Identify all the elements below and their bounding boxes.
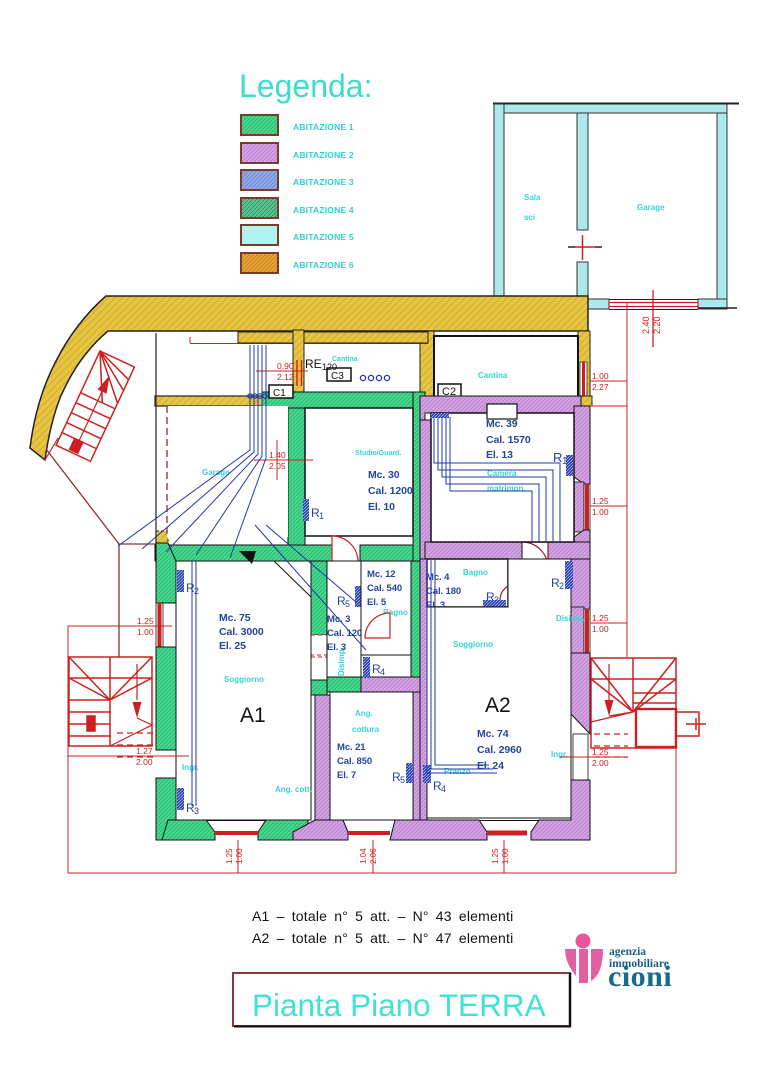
svg-text:agenzia: agenzia bbox=[609, 946, 646, 958]
svg-text:Garage: Garage bbox=[202, 468, 230, 477]
svg-text:4: 4 bbox=[380, 667, 385, 677]
svg-text:Disimp.: Disimp. bbox=[556, 614, 585, 623]
svg-text:A2: A2 bbox=[485, 694, 511, 717]
svg-text:ABITAZIONE 1: ABITAZIONE 1 bbox=[293, 122, 354, 132]
svg-text:2.12: 2.12 bbox=[277, 372, 294, 382]
svg-text:Studio/Guard.: Studio/Guard. bbox=[355, 450, 401, 457]
svg-text:1.00: 1.00 bbox=[592, 371, 609, 381]
svg-text:El. 25: El. 25 bbox=[219, 640, 246, 652]
svg-text:1: 1 bbox=[319, 511, 324, 521]
svg-text:1.00: 1.00 bbox=[501, 848, 510, 864]
svg-text:A1 – totale n° 5 att. –: A1 – totale n° 5 att. – N° 43 elementi bbox=[252, 908, 513, 924]
svg-text:5: 5 bbox=[345, 599, 350, 609]
svg-text:Cal. 540: Cal. 540 bbox=[367, 583, 402, 594]
svg-text:C1: C1 bbox=[273, 388, 286, 399]
svg-text:Cal. 3000: Cal. 3000 bbox=[219, 626, 264, 638]
svg-text:Soggiorno: Soggiorno bbox=[453, 640, 493, 649]
svg-text:Mc. 75: Mc. 75 bbox=[219, 612, 251, 624]
svg-text:Mc. 30: Mc. 30 bbox=[368, 469, 400, 481]
svg-text:C3: C3 bbox=[331, 371, 344, 382]
svg-text:1.25: 1.25 bbox=[592, 613, 609, 623]
svg-text:ABITAZIONE 5: ABITAZIONE 5 bbox=[293, 232, 354, 242]
svg-text:Ang.: Ang. bbox=[355, 709, 373, 718]
svg-text:RE: RE bbox=[305, 357, 322, 371]
svg-text:Cal. 1570: Cal. 1570 bbox=[486, 434, 531, 446]
svg-text:2.00: 2.00 bbox=[592, 758, 609, 768]
svg-text:ABITAZIONE 2: ABITAZIONE 2 bbox=[293, 150, 354, 160]
svg-text:Mc. 74: Mc. 74 bbox=[477, 728, 509, 740]
svg-text:1.25: 1.25 bbox=[225, 848, 234, 864]
svg-text:Cal. 2960: Cal. 2960 bbox=[477, 744, 522, 756]
svg-text:1.00: 1.00 bbox=[592, 624, 609, 634]
svg-text:A1: A1 bbox=[240, 704, 266, 727]
svg-text:1.27: 1.27 bbox=[136, 746, 153, 756]
svg-text:ABITAZIONE 3: ABITAZIONE 3 bbox=[293, 177, 354, 187]
svg-text:1.25: 1.25 bbox=[491, 848, 500, 864]
svg-text:matrimon.: matrimon. bbox=[487, 484, 526, 493]
svg-text:Ang. cott.: Ang. cott. bbox=[275, 785, 312, 794]
svg-text:Legenda:: Legenda: bbox=[239, 68, 372, 104]
svg-text:1.25: 1.25 bbox=[137, 616, 154, 626]
svg-text:cottura: cottura bbox=[352, 725, 380, 734]
svg-text:Mc. 12: Mc. 12 bbox=[367, 569, 395, 580]
svg-text:Cantina: Cantina bbox=[478, 371, 508, 380]
svg-text:1.00: 1.00 bbox=[235, 848, 244, 864]
svg-text:1.25: 1.25 bbox=[592, 496, 609, 506]
svg-text:El. 24: El. 24 bbox=[477, 760, 504, 772]
svg-text:Mc. 4: Mc. 4 bbox=[426, 572, 450, 583]
svg-text:3: 3 bbox=[194, 806, 199, 816]
svg-text:ABITAZIONE 6: ABITAZIONE 6 bbox=[293, 260, 354, 270]
svg-text:2: 2 bbox=[559, 581, 564, 591]
svg-text:4: 4 bbox=[441, 784, 446, 794]
svg-text:cioni: cioni bbox=[608, 960, 672, 993]
svg-text:Soggiorno: Soggiorno bbox=[224, 675, 264, 684]
svg-text:A2 – totale n° 5 att. –: A2 – totale n° 5 att. – N° 47 elementi bbox=[252, 930, 513, 946]
svg-text:1.25: 1.25 bbox=[592, 747, 609, 757]
svg-text:El. 5: El. 5 bbox=[367, 597, 387, 608]
svg-text:1.00: 1.00 bbox=[137, 627, 154, 637]
svg-text:1.00: 1.00 bbox=[592, 507, 609, 517]
svg-text:Disimp.: Disimp. bbox=[337, 647, 346, 676]
svg-text:120: 120 bbox=[322, 362, 337, 372]
svg-text:5: 5 bbox=[400, 775, 405, 785]
svg-text:2.20: 2.20 bbox=[652, 316, 662, 334]
svg-text:2.27: 2.27 bbox=[592, 382, 609, 392]
svg-text:El. 10: El. 10 bbox=[368, 501, 395, 513]
svg-text:Bagno: Bagno bbox=[463, 568, 488, 577]
svg-text:Sala: Sala bbox=[524, 193, 541, 202]
svg-text:ABITAZIONE 4: ABITAZIONE 4 bbox=[293, 205, 354, 215]
svg-text:Cal. 850: Cal. 850 bbox=[337, 756, 372, 767]
svg-text:Mc. 39: Mc. 39 bbox=[486, 418, 518, 430]
svg-text:Cal. 1200: Cal. 1200 bbox=[368, 485, 413, 497]
svg-text:0.90: 0.90 bbox=[277, 361, 294, 371]
svg-text:2.40: 2.40 bbox=[641, 316, 651, 334]
svg-text:Cal. 120: Cal. 120 bbox=[327, 628, 362, 639]
svg-text:Pranzo: Pranzo bbox=[444, 767, 471, 776]
svg-text:Pianta Piano TERRA: Pianta Piano TERRA bbox=[252, 987, 546, 1023]
svg-text:El. 7: El. 7 bbox=[337, 770, 356, 781]
svg-text:El. 13: El. 13 bbox=[486, 449, 513, 461]
svg-text:2.06: 2.06 bbox=[369, 848, 378, 864]
svg-text:1.04: 1.04 bbox=[359, 848, 368, 864]
svg-text:2: 2 bbox=[194, 586, 199, 596]
svg-text:2.00: 2.00 bbox=[136, 757, 153, 767]
svg-text:Mc. 21: Mc. 21 bbox=[337, 742, 366, 753]
svg-text:sci: sci bbox=[524, 213, 535, 222]
svg-text:Ingr.: Ingr. bbox=[551, 750, 568, 759]
svg-text:Garage: Garage bbox=[637, 203, 665, 212]
